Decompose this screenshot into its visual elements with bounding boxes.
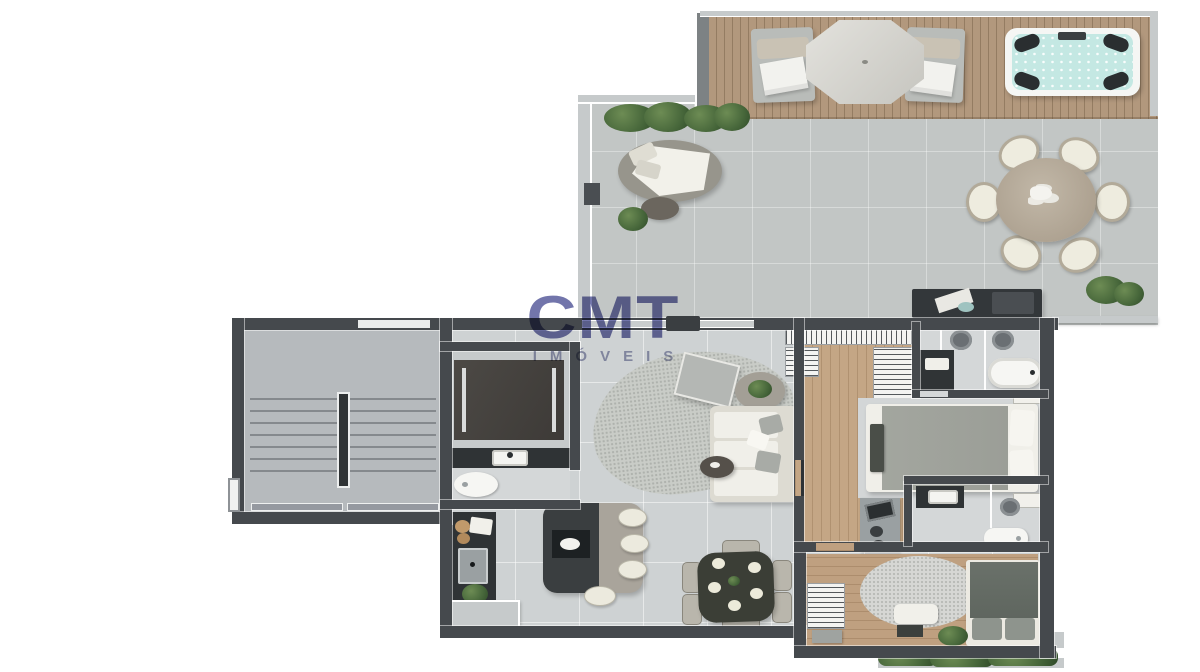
terrace-wall-block: [584, 183, 600, 205]
master-bath-glass: [984, 324, 986, 390]
bedroom2-plant: [938, 626, 968, 646]
outdoor-dining-table: [996, 158, 1096, 242]
wall-bottom-main: [440, 626, 806, 638]
elevator-cab: [454, 360, 564, 440]
bedroom2-door-opening: [816, 543, 854, 551]
dining-plate: [708, 582, 721, 593]
desk-stool: [870, 526, 883, 537]
wall-bath2-top: [904, 476, 1048, 484]
deck-parapet-right: [1150, 13, 1158, 116]
bath2-sink: [928, 490, 958, 504]
terrace-parapet-bottom-right: [1052, 316, 1158, 323]
sofa-throw-pillow: [754, 450, 781, 474]
bath2-toilet-button: [1016, 536, 1021, 541]
deck-parapet-top: [700, 11, 1158, 17]
bathtub-drain: [1030, 370, 1035, 375]
shower-head: [992, 330, 1014, 350]
dining-plate: [728, 600, 741, 611]
jacuzzi-control-panel: [1058, 32, 1086, 40]
bed-bench: [870, 424, 884, 472]
bedroom2-pillow: [1005, 618, 1035, 640]
bedroom2-ottoman: [894, 604, 938, 624]
wall-bath2-left: [904, 482, 912, 546]
masterbath-door-opening: [920, 391, 948, 397]
wall-bedroom2-bottom: [794, 646, 1056, 658]
bar-stool: [584, 586, 616, 606]
deck-wall-left: [695, 13, 709, 116]
bedroom2-pillow: [972, 618, 1002, 640]
powder-faucet: [507, 452, 513, 458]
bath2-shower-glass: [990, 484, 992, 528]
kitchen-dish: [469, 517, 493, 536]
wall-niche: [228, 478, 240, 512]
stair-handrail: [339, 394, 348, 486]
dining-chair: [772, 560, 792, 591]
dining-plate: [748, 562, 761, 573]
bedroom2-console: [897, 625, 923, 637]
sideboard-bowl: [958, 302, 974, 312]
cutting-board: [455, 520, 470, 533]
walkin-closet-unit-right: [874, 348, 912, 400]
wall-living-suite: [794, 318, 804, 550]
shower-head: [950, 330, 972, 350]
master-bed-pillow: [1009, 409, 1035, 447]
wall-bedroom2-left: [794, 548, 806, 658]
kitchen-faucet: [470, 562, 475, 567]
bedroom2-bench: [812, 630, 842, 643]
vanity-tray: [925, 358, 949, 370]
wall-kitchen-top: [440, 500, 580, 509]
cooktop-pan: [560, 538, 580, 550]
stair-entry-door-leaf: [348, 504, 438, 510]
outdoor-chair: [1094, 182, 1130, 222]
terrace-small-plant: [618, 207, 648, 231]
stair-entry-door-leaf: [252, 504, 342, 510]
dining-plate: [712, 558, 725, 569]
powder-toilet: [454, 472, 498, 497]
planter-hedge: [714, 103, 750, 131]
dining-chair: [772, 592, 792, 623]
terrace-parapet-top: [578, 95, 700, 104]
powder-toilet-button: [462, 482, 468, 487]
wall-stair-kitchen-divider: [440, 318, 452, 638]
penthouse-floor-plan: CMT IMÓVEIS: [0, 0, 1200, 672]
bar-stool: [618, 508, 647, 527]
terrace-corner-plant: [1114, 282, 1144, 306]
wall-stair-bottom: [232, 512, 452, 524]
stair-upper-door: [358, 320, 430, 328]
watermark-tagline: IMÓVEIS: [498, 348, 708, 365]
watermark-brand: CMT: [500, 290, 705, 348]
sideboard-box: [992, 292, 1034, 314]
elevator-rail: [552, 368, 556, 432]
bar-stool: [620, 534, 649, 553]
master-bath-vanity: [920, 350, 954, 392]
bedroom2-closet: [808, 584, 844, 628]
side-table-tray: [710, 462, 720, 468]
elevator-rail: [462, 368, 466, 432]
suite-door-leaf: [801, 460, 804, 496]
living-plant: [748, 380, 772, 398]
dining-centerpiece: [728, 576, 740, 586]
cutting-board: [457, 533, 470, 544]
bedroom2-duvet: [970, 562, 1038, 618]
dining-plate: [750, 588, 763, 599]
table-centerpiece: [1030, 186, 1052, 200]
wall-masterbath-left: [912, 322, 920, 398]
parasol-pole: [862, 60, 868, 64]
bath2-shower-head: [1000, 498, 1020, 516]
bar-stool: [618, 560, 647, 579]
wall-right: [1040, 318, 1054, 658]
